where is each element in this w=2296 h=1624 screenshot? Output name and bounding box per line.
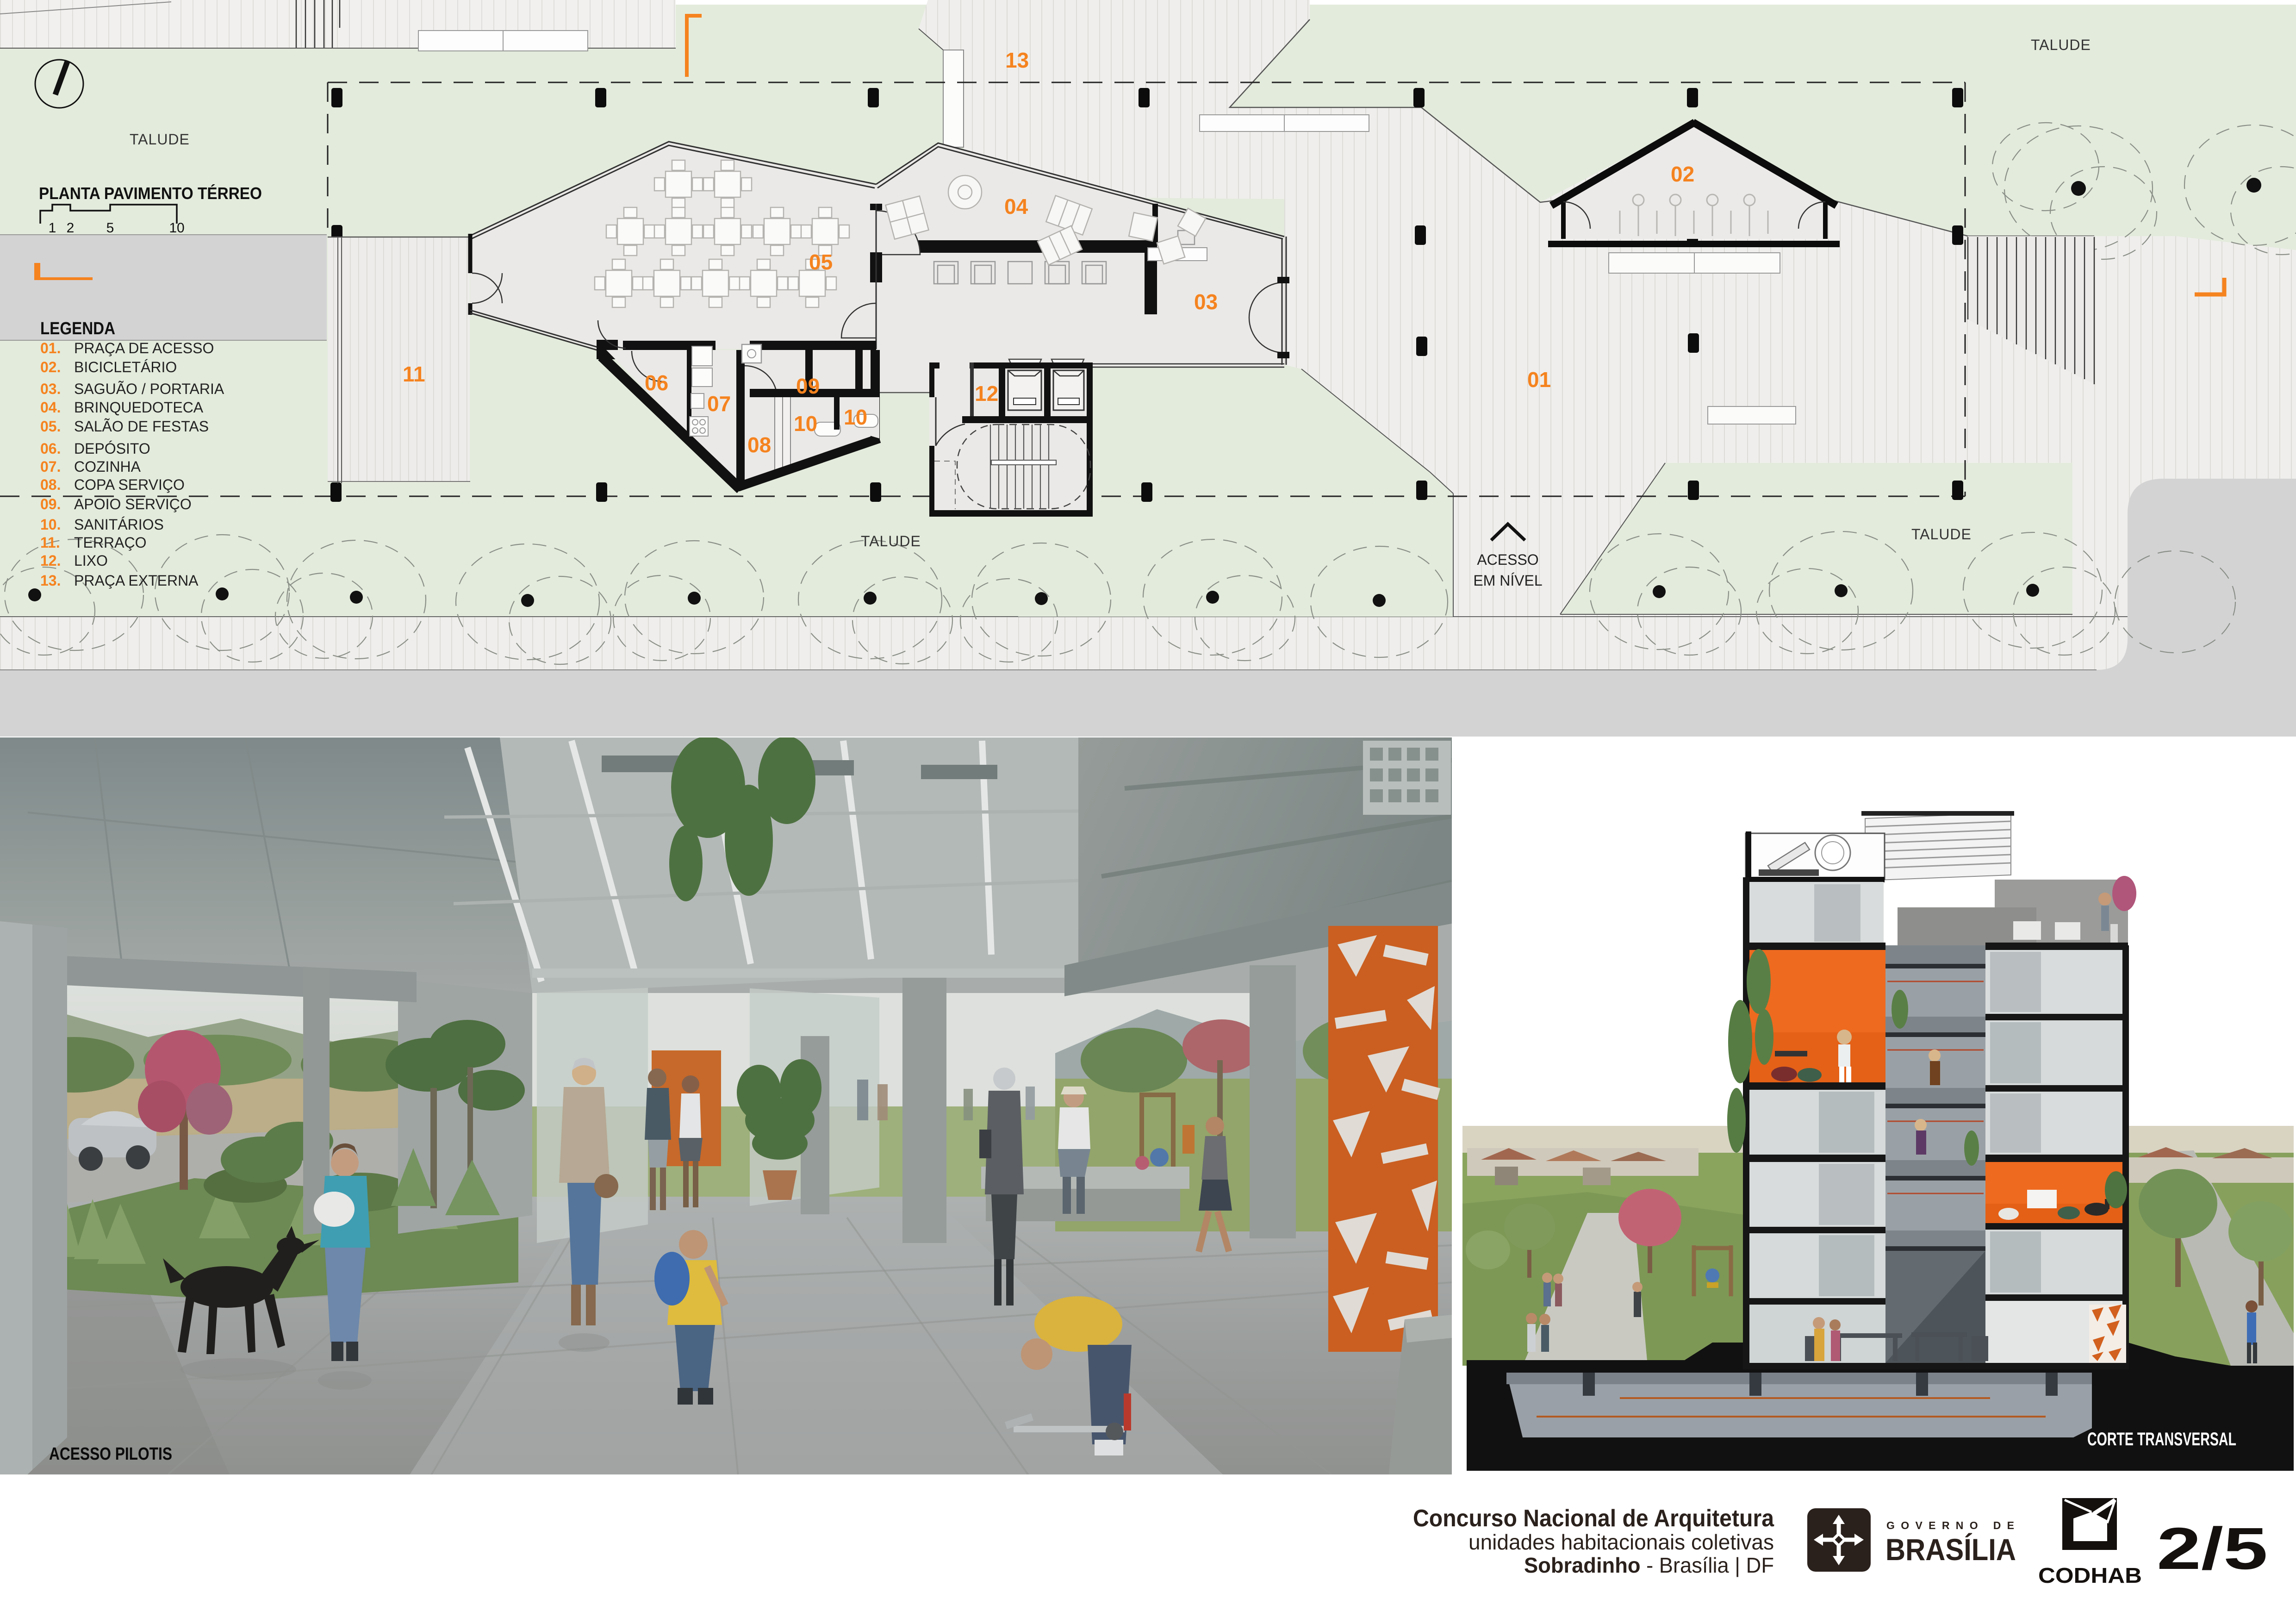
svg-text:BRASÍLIA: BRASÍLIA <box>1885 1532 2016 1567</box>
svg-text:ACESSO PILOTIS: ACESSO PILOTIS <box>49 1444 172 1464</box>
svg-text:1: 1 <box>49 220 56 236</box>
svg-text:08.: 08. <box>40 476 61 493</box>
svg-text:02: 02 <box>1671 162 1694 186</box>
svg-text:DEPÓSITO: DEPÓSITO <box>74 440 150 457</box>
svg-text:11: 11 <box>403 362 425 386</box>
svg-text:PRAÇA DE ACESSO: PRAÇA DE ACESSO <box>74 340 214 356</box>
svg-text:SAGUÃO / PORTARIA: SAGUÃO / PORTARIA <box>74 381 224 397</box>
svg-text:LIXO: LIXO <box>74 552 108 569</box>
svg-text:COPA SERVIÇO: COPA SERVIÇO <box>74 476 185 493</box>
svg-text:ACESSO: ACESSO <box>1477 551 1538 568</box>
svg-text:12.: 12. <box>40 552 61 569</box>
svg-text:10: 10 <box>844 405 867 429</box>
svg-text:13.: 13. <box>40 572 61 589</box>
svg-text:COZINHA: COZINHA <box>74 458 141 475</box>
svg-text:BRINQUEDOTECA: BRINQUEDOTECA <box>74 399 204 416</box>
svg-text:Sobradinho - Brasília | DF: Sobradinho - Brasília | DF <box>1524 1553 1774 1577</box>
svg-text:PLANTA PAVIMENTO TÉRREO: PLANTA PAVIMENTO TÉRREO <box>39 184 262 203</box>
svg-text:04.: 04. <box>40 399 61 416</box>
svg-text:CODHAB: CODHAB <box>2038 1563 2142 1587</box>
svg-text:5: 5 <box>106 220 114 236</box>
svg-text:04: 04 <box>1004 194 1028 219</box>
svg-text:12: 12 <box>975 381 998 406</box>
svg-text:09.: 09. <box>40 496 61 512</box>
svg-text:TERRAÇO: TERRAÇO <box>74 534 146 551</box>
svg-text:TALUDE: TALUDE <box>2031 37 2091 53</box>
svg-text:LEGENDA: LEGENDA <box>40 319 115 338</box>
svg-text:05: 05 <box>809 250 833 274</box>
svg-text:SANITÁRIOS: SANITÁRIOS <box>74 516 164 533</box>
svg-text:03: 03 <box>1194 290 1218 314</box>
svg-text:09: 09 <box>796 374 820 398</box>
svg-text:06: 06 <box>645 371 668 395</box>
svg-text:EM NÍVEL: EM NÍVEL <box>1473 572 1542 589</box>
svg-text:11.: 11. <box>40 534 60 551</box>
svg-text:01: 01 <box>1527 368 1551 392</box>
svg-text:APOIO SERVIÇO: APOIO SERVIÇO <box>74 496 192 512</box>
svg-text:CORTE TRANSVERSAL: CORTE TRANSVERSAL <box>2087 1429 2236 1449</box>
svg-text:2/5: 2/5 <box>2157 1516 2268 1582</box>
svg-text:PRAÇA EXTERNA: PRAÇA EXTERNA <box>74 572 199 589</box>
svg-text:02.: 02. <box>40 359 61 375</box>
svg-text:07.: 07. <box>40 458 61 475</box>
svg-text:01.: 01. <box>40 340 61 356</box>
svg-text:07: 07 <box>707 392 731 416</box>
svg-text:06.: 06. <box>40 440 61 457</box>
svg-text:SALÃO DE FESTAS: SALÃO DE FESTAS <box>74 418 209 435</box>
svg-text:BICICLETÁRIO: BICICLETÁRIO <box>74 359 177 375</box>
svg-text:10: 10 <box>794 412 817 436</box>
svg-text:10: 10 <box>169 220 184 236</box>
svg-text:08: 08 <box>747 433 771 457</box>
svg-text:TALUDE: TALUDE <box>130 131 190 148</box>
svg-text:Concurso Nacional de Arquitetu: Concurso Nacional de Arquitetura <box>1413 1505 1774 1532</box>
svg-text:TALUDE: TALUDE <box>1911 526 1972 543</box>
svg-text:10.: 10. <box>40 516 61 533</box>
svg-text:13: 13 <box>1005 48 1029 72</box>
svg-text:TALUDE: TALUDE <box>861 533 921 550</box>
svg-text:2: 2 <box>67 220 75 236</box>
svg-text:05.: 05. <box>40 418 61 435</box>
svg-text:03.: 03. <box>40 381 61 397</box>
svg-text:unidades habitacionais coletiv: unidades habitacionais coletivas <box>1468 1530 1774 1554</box>
